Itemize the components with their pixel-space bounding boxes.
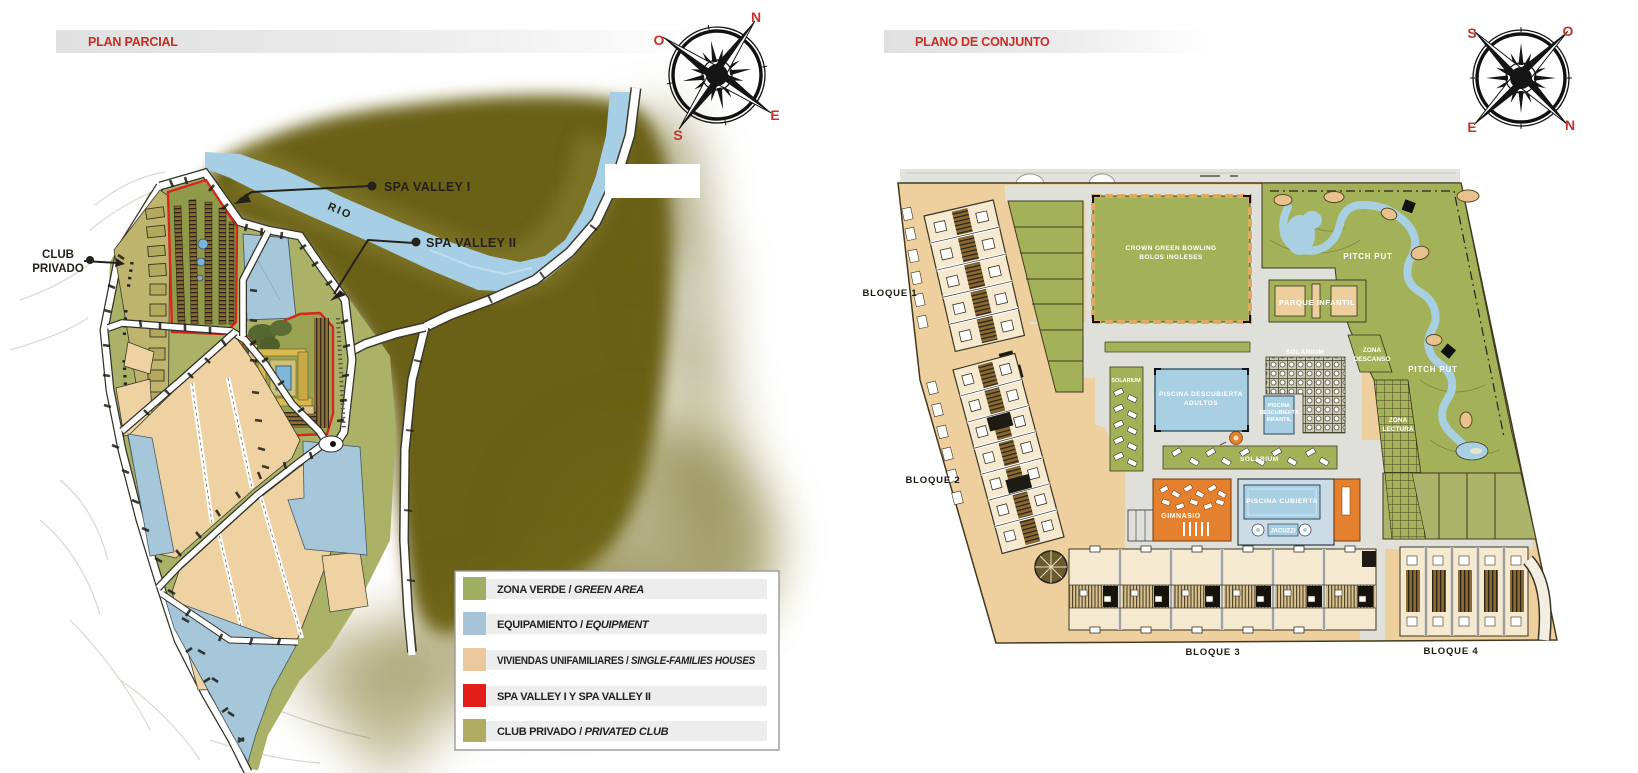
svg-text:BLOQUE 4: BLOQUE 4 — [1424, 646, 1479, 657]
svg-text:S: S — [673, 127, 682, 143]
svg-text:CLUB: CLUB — [42, 249, 74, 261]
svg-text:DESCUBIERTA: DESCUBIERTA — [1259, 410, 1298, 416]
svg-text:DESCANSO: DESCANSO — [1354, 356, 1391, 363]
svg-text:SOLARIUM: SOLARIUM — [1111, 378, 1141, 384]
svg-text:N: N — [1565, 117, 1575, 133]
svg-text:BLOQUE 1: BLOQUE 1 — [863, 288, 918, 299]
svg-text:S: S — [1467, 25, 1476, 41]
svg-text:ZONA: ZONA — [1389, 417, 1408, 424]
svg-text:VIVIENDAS UNIFAMILIARES / SING: VIVIENDAS UNIFAMILIARES / SINGLE-FAMILIE… — [497, 655, 756, 667]
svg-text:O: O — [1563, 23, 1574, 39]
svg-text:JACUZZI: JACUZZI — [1270, 529, 1296, 535]
svg-text:GIMNASIO: GIMNASIO — [1161, 513, 1200, 520]
svg-text:ZONA VERDE / GREEN AREA: ZONA VERDE / GREEN AREA — [497, 584, 644, 596]
svg-text:E: E — [1467, 119, 1476, 135]
svg-text:ADULTOS: ADULTOS — [1184, 400, 1218, 407]
svg-text:PRIVADO: PRIVADO — [32, 263, 84, 275]
svg-text:PLAN PARCIAL: PLAN PARCIAL — [88, 35, 178, 49]
svg-text:PISCINA CUBIERTA: PISCINA CUBIERTA — [1246, 498, 1318, 505]
svg-text:SOLARIUM: SOLARIUM — [1286, 349, 1325, 356]
svg-text:BOLOS INGLESES: BOLOS INGLESES — [1139, 254, 1203, 261]
svg-text:PLANO DE CONJUNTO: PLANO DE CONJUNTO — [915, 35, 1050, 49]
svg-text:SPA VALLEY II: SPA VALLEY II — [426, 236, 516, 250]
svg-text:PISCINA: PISCINA — [1268, 403, 1290, 409]
svg-text:ZONA: ZONA — [1363, 347, 1382, 354]
svg-text:PITCH PUT: PITCH PUT — [1408, 365, 1457, 374]
svg-text:SOLARIUM: SOLARIUM — [1240, 456, 1279, 463]
svg-text:SPA VALLEY I Y SPA VALLEY II: SPA VALLEY I Y SPA VALLEY II — [497, 691, 651, 703]
svg-text:PARQUE INFANTIL: PARQUE INFANTIL — [1279, 298, 1355, 307]
svg-text:BLOQUE 3: BLOQUE 3 — [1186, 647, 1241, 658]
svg-text:SPA VALLEY I: SPA VALLEY I — [384, 180, 471, 194]
svg-text:INFANTIL: INFANTIL — [1267, 417, 1292, 423]
svg-text:CLUB PRIVADO / PRIVATED CLUB: CLUB PRIVADO / PRIVATED CLUB — [497, 726, 669, 738]
svg-text:BLOQUE 2: BLOQUE 2 — [906, 475, 961, 486]
svg-text:EQUIPAMIENTO / EQUIPMENT: EQUIPAMIENTO / EQUIPMENT — [497, 619, 650, 631]
svg-text:E: E — [770, 107, 779, 123]
svg-text:CROWN GREEN BOWLING: CROWN GREEN BOWLING — [1125, 245, 1216, 252]
svg-text:PISCINA DESCUBIERTA: PISCINA DESCUBIERTA — [1159, 391, 1243, 398]
svg-text:PITCH PUT: PITCH PUT — [1343, 252, 1392, 261]
svg-text:LECTURA: LECTURA — [1382, 426, 1413, 433]
svg-text:O: O — [654, 32, 665, 48]
svg-text:N: N — [751, 9, 761, 25]
